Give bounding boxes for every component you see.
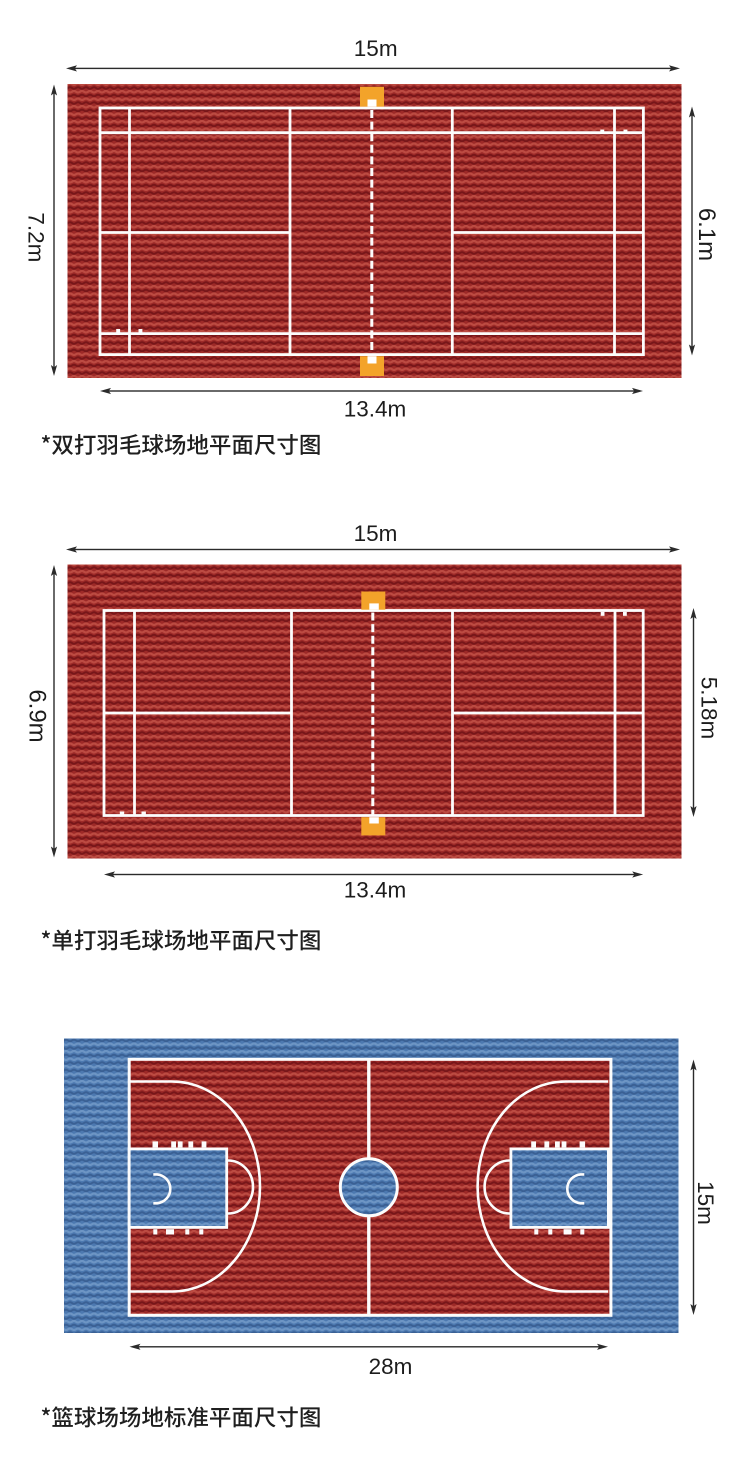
svg-text:15m: 15m [354,36,398,61]
svg-text:15m: 15m [354,521,398,546]
svg-text:13.4m: 13.4m [344,397,407,422]
svg-text:6.9m: 6.9m [23,689,50,742]
svg-text:15m: 15m [693,1181,718,1225]
svg-text:7.2m: 7.2m [24,212,49,262]
svg-text:6.1m: 6.1m [693,208,720,261]
svg-text:5.18m: 5.18m [696,677,721,740]
svg-text:28m: 28m [369,1354,413,1379]
svg-text:13.4m: 13.4m [344,878,407,903]
